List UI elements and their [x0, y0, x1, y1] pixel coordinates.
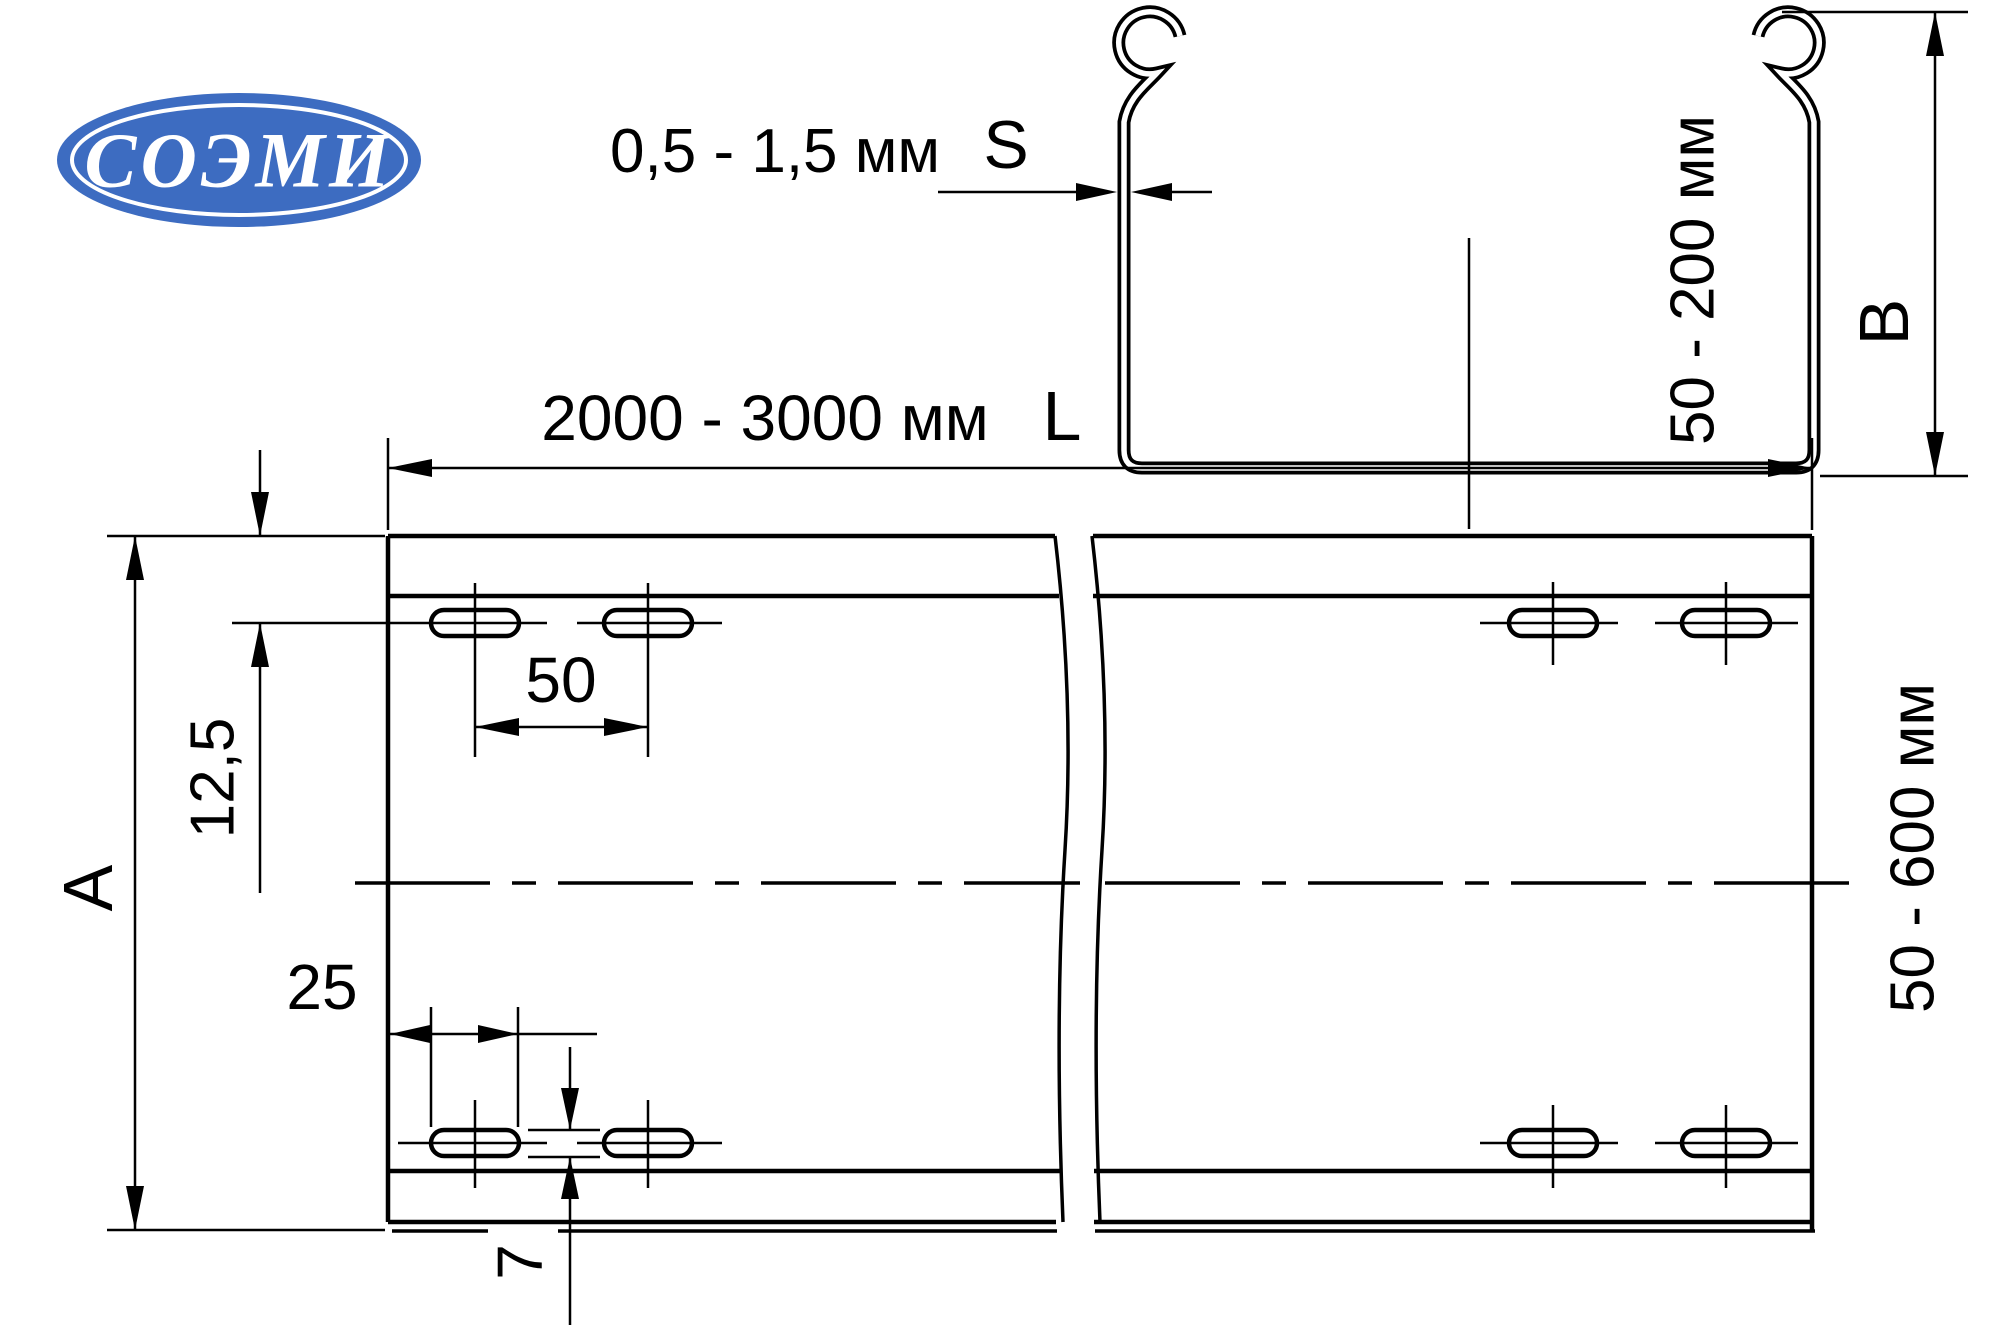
dim-7-arrow-down	[561, 1088, 579, 1130]
dim-width-arrow-top	[126, 536, 144, 580]
dim-edge-to-slots: 12,5	[179, 450, 399, 893]
dim-thickness-arrow-left	[1076, 183, 1117, 201]
plan-view: 2000 - 3000 мм L A 50 - 600 мм 12,5 50	[49, 377, 1948, 1325]
dim-height-arrow-bottom	[1926, 432, 1944, 476]
dim-50-label: 50	[525, 644, 596, 716]
dim-12-5-label: 12,5	[179, 718, 248, 839]
width-range-label: 50 - 600 мм	[1879, 683, 1948, 1013]
break-line-left	[1055, 536, 1068, 1222]
break-lines	[1055, 536, 1105, 1222]
thickness-symbol-label: S	[983, 107, 1028, 183]
dim-50-arrow-left	[475, 718, 519, 736]
width-symbol-label: A	[49, 864, 127, 911]
break-line-right	[1092, 536, 1105, 1222]
dim-slot-length: 25	[286, 951, 597, 1127]
dim-length-arrow-left	[388, 459, 432, 477]
dim-25-arrow-right	[478, 1025, 518, 1043]
dim-slot-width: 7	[484, 1047, 600, 1325]
logo: СОЭМИ	[57, 93, 421, 227]
height-symbol-label: B	[1845, 299, 1923, 346]
dim-height-arrow-top	[1926, 12, 1944, 56]
height-range-label: 50 - 200 мм	[1659, 115, 1728, 445]
dim-slot-spacing: 50	[475, 644, 648, 736]
dim-length: 2000 - 3000 мм L	[388, 377, 1812, 530]
dim-12-5-arrow-down	[251, 492, 269, 536]
logo-title: СОЭМИ	[84, 117, 393, 204]
dim-50-arrow-right	[604, 718, 648, 736]
thickness-range-label: 0,5 - 1,5 мм	[610, 117, 940, 186]
dim-7-arrow-up	[561, 1157, 579, 1199]
dim-25-label: 25	[286, 951, 357, 1023]
dim-12-5-arrow-up	[251, 623, 269, 667]
dim-thickness-arrow-right	[1131, 183, 1172, 201]
length-range-label: 2000 - 3000 мм	[541, 382, 988, 454]
dim-7-label: 7	[484, 1244, 556, 1280]
length-symbol-label: L	[1043, 377, 1082, 455]
dim-25-arrow-left	[390, 1025, 430, 1043]
dim-width-arrow-bottom	[126, 1186, 144, 1230]
drawing-sheet: СОЭМИ 0,5 - 1,5 мм S 50 - 200 мм B	[0, 0, 2000, 1333]
